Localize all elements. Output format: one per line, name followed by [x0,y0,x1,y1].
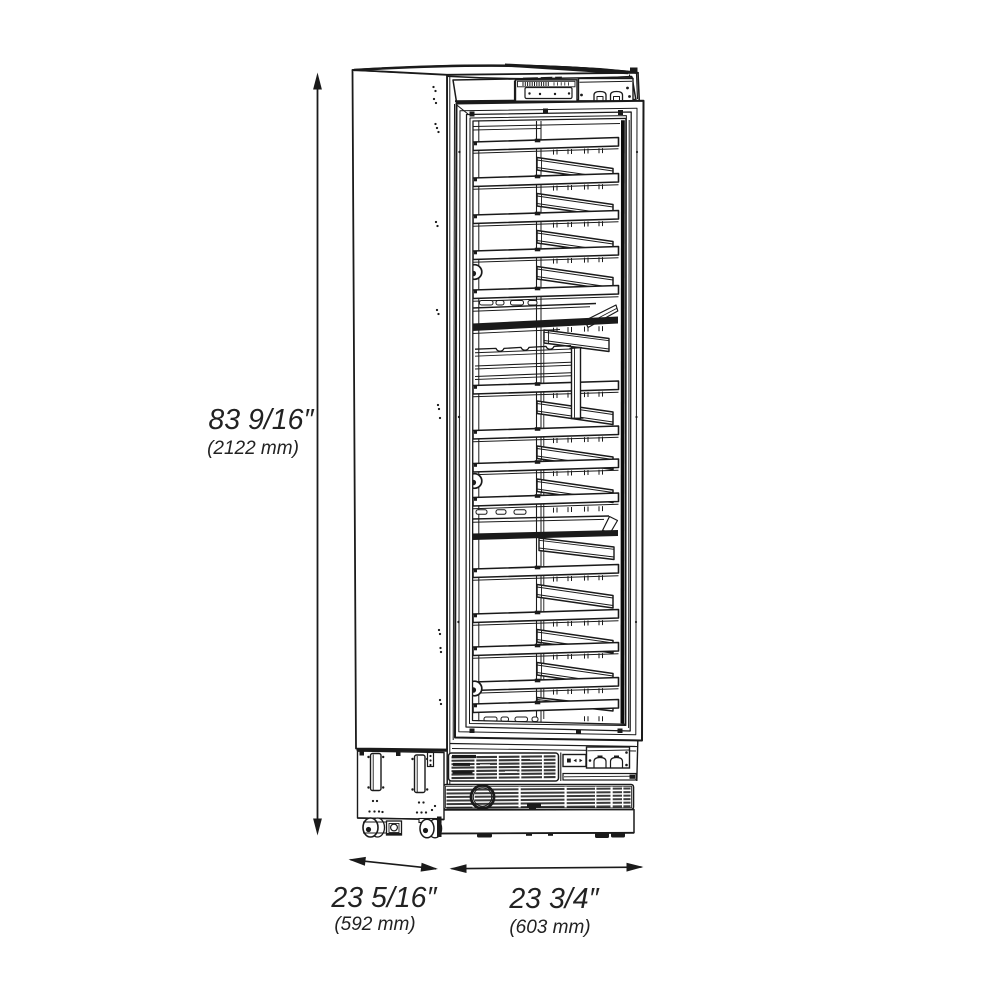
svg-text:(2122 mm): (2122 mm) [207,438,299,459]
svg-text:23 3/4″: 23 3/4″ [508,883,599,915]
svg-text:83 9/16″: 83 9/16″ [208,404,314,436]
svg-text:(592 mm): (592 mm) [334,914,415,935]
svg-text:23 5/16″: 23 5/16″ [330,882,437,914]
svg-text:(603 mm): (603 mm) [509,917,590,938]
